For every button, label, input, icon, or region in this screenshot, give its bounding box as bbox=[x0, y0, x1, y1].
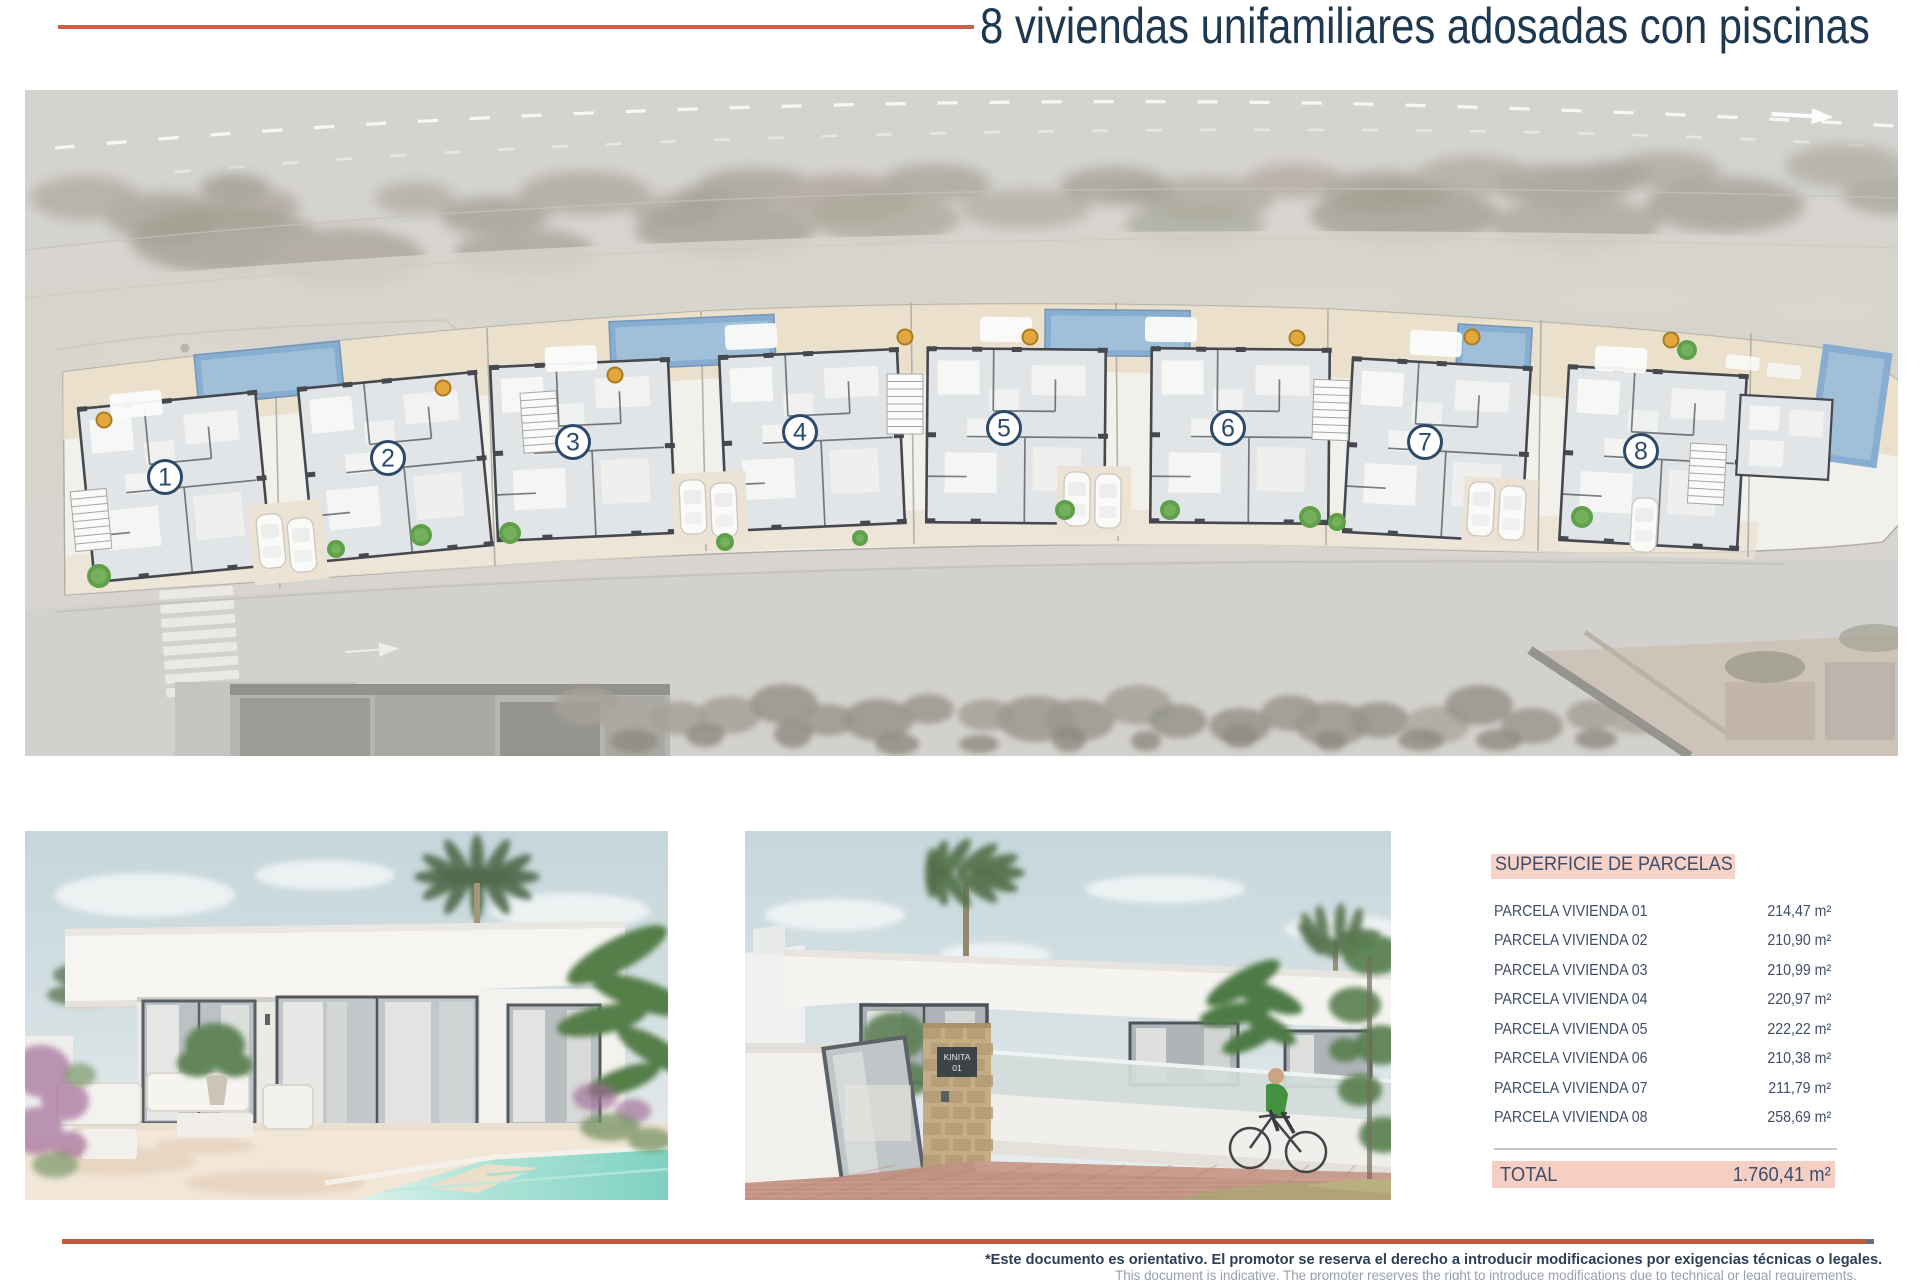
svg-text:KINITA: KINITA bbox=[944, 1052, 971, 1062]
svg-text:6: 6 bbox=[1221, 415, 1235, 443]
svg-text:5: 5 bbox=[997, 415, 1011, 443]
svg-text:01: 01 bbox=[952, 1063, 962, 1073]
svg-text:8: 8 bbox=[1634, 438, 1648, 466]
svg-text:2: 2 bbox=[381, 445, 395, 473]
svg-text:1: 1 bbox=[158, 464, 172, 492]
svg-text:3: 3 bbox=[566, 429, 580, 457]
svg-text:4: 4 bbox=[793, 419, 807, 447]
svg-text:7: 7 bbox=[1418, 429, 1432, 457]
